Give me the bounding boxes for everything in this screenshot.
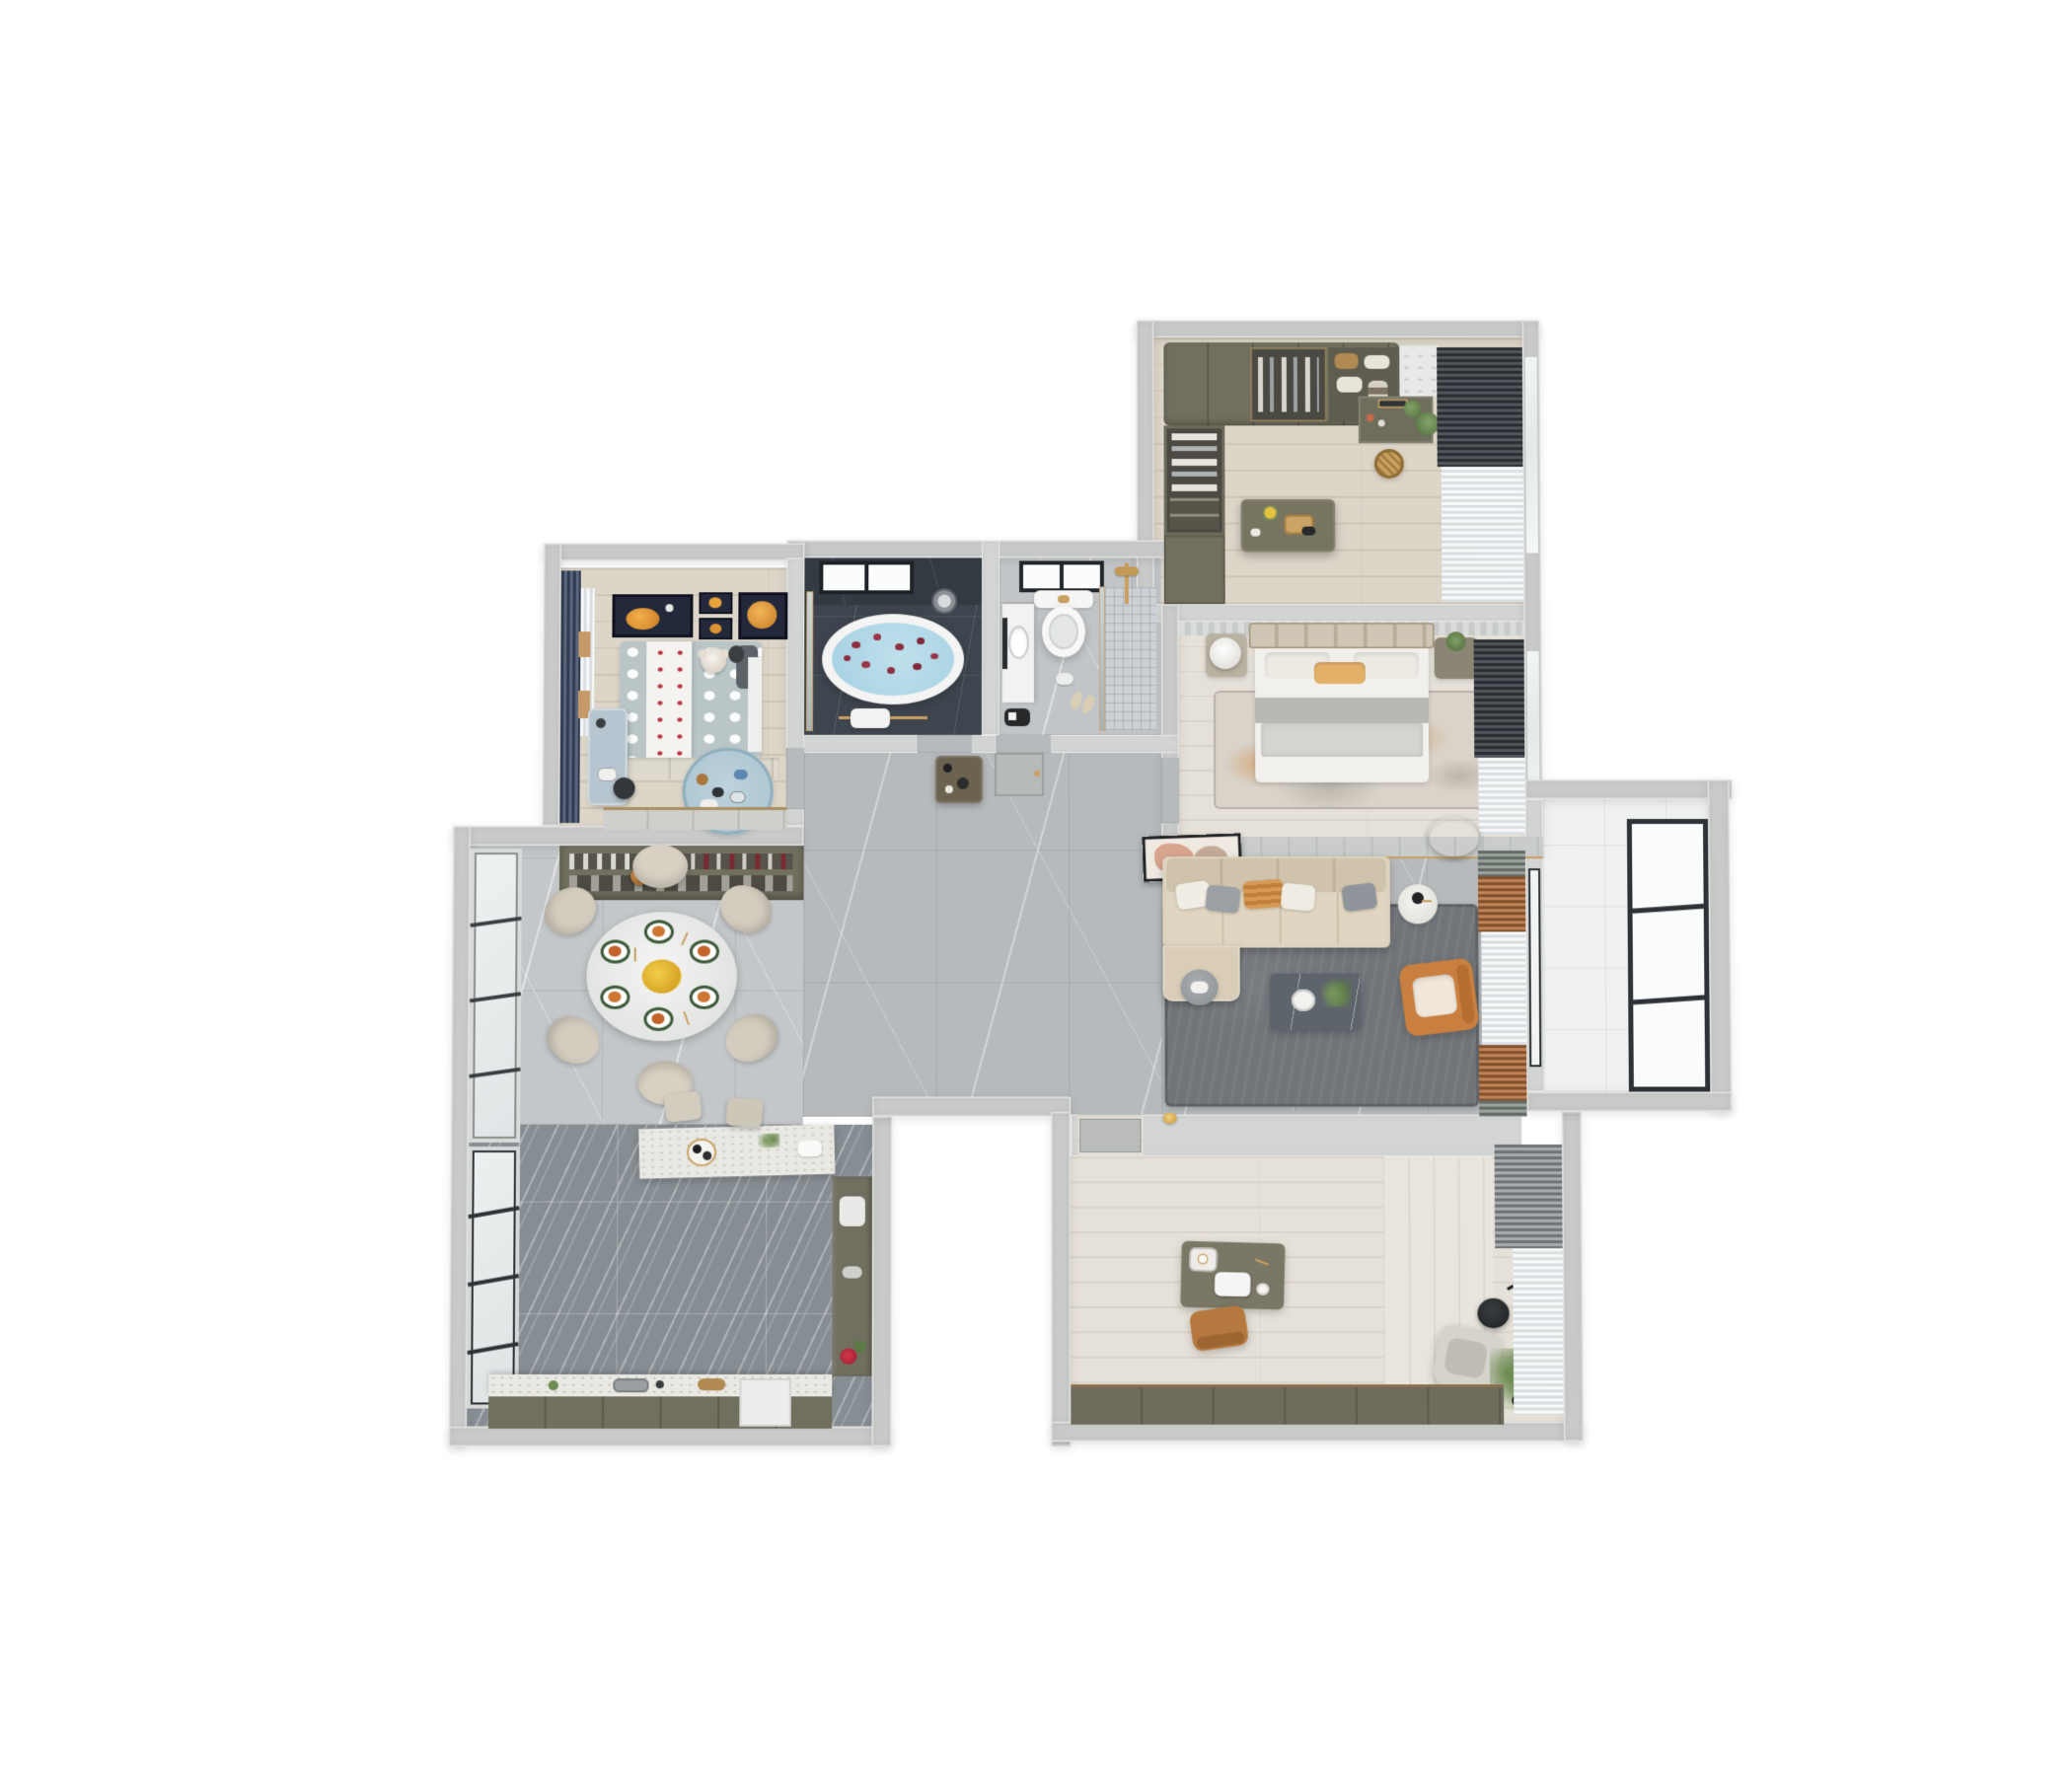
dresser-island — [1240, 499, 1335, 553]
window-division — [1627, 903, 1708, 914]
laptop — [1215, 1272, 1251, 1296]
window-mullion — [470, 992, 521, 1002]
wall-closet-bedroom — [1137, 604, 1542, 622]
kids-wardrobe — [603, 807, 786, 830]
rose-petal — [913, 663, 922, 670]
bathB-window — [1019, 560, 1104, 592]
book-on-table — [1191, 982, 1209, 994]
bedroom-curtains-dark — [1474, 639, 1525, 758]
bathtub — [822, 614, 964, 704]
orange-moon — [708, 597, 721, 608]
nightstand-plant — [1446, 631, 1466, 651]
door-handle-gold — [1034, 771, 1040, 777]
white-accessory — [1250, 529, 1260, 537]
white-drum-table — [1398, 884, 1438, 924]
wall-kids-left — [542, 544, 561, 827]
gold-pen — [1255, 1259, 1269, 1266]
storage-box — [1337, 377, 1363, 393]
sofa-main — [1162, 856, 1390, 947]
armchair-cushion-white — [1412, 974, 1458, 1018]
pillow-orange-striped — [1243, 879, 1285, 910]
black-vase — [957, 777, 969, 789]
orange-armchair — [1398, 957, 1480, 1037]
bathroom-shelf-black — [1004, 708, 1030, 726]
red-flowers — [840, 1349, 856, 1365]
shower-zone — [1105, 587, 1156, 730]
coffee-table-plant — [1321, 980, 1351, 1007]
kids-door-opening — [786, 748, 804, 809]
bathB-door-leaf — [995, 753, 1044, 796]
dining-chair — [632, 845, 688, 888]
rose-petal — [930, 653, 938, 659]
living-ceiling-ring-light — [1430, 821, 1479, 856]
food — [651, 1013, 664, 1024]
gold-lamp-arm — [1422, 900, 1432, 902]
orange-moon-large — [747, 601, 777, 629]
hanging-clothes — [1258, 357, 1319, 411]
vanity-plant-large — [1416, 411, 1440, 435]
counter-item-board — [698, 1378, 725, 1390]
white-box — [797, 1141, 822, 1157]
pillow-white — [1281, 883, 1316, 912]
black-table-lamp — [1412, 892, 1424, 904]
shower-glass-divider — [1100, 587, 1104, 730]
bedroom-sheer-curtain — [1478, 758, 1525, 835]
rose-petal — [861, 661, 870, 668]
wall-kitchen-right — [871, 1117, 892, 1446]
cabinet-shelf-bottles — [678, 853, 792, 869]
gold-cutlery — [683, 1011, 690, 1025]
perfume-bottles — [1367, 413, 1374, 421]
deer-plush — [728, 645, 744, 663]
dining-table — [586, 912, 737, 1041]
wall-balcony-right — [1708, 779, 1733, 1112]
living-curtain-green-top — [1478, 851, 1525, 876]
arc-lamp-shade — [1477, 1298, 1509, 1328]
dining-window — [469, 849, 522, 1143]
wardrobe-glass-section — [1250, 347, 1327, 421]
counter-items — [843, 1266, 862, 1278]
toilet-seat — [1049, 614, 1078, 649]
place-setting — [600, 986, 629, 1009]
pillow-gray — [1205, 885, 1241, 915]
closet-curtains-dark — [1437, 347, 1522, 467]
bar-stool — [725, 1097, 764, 1128]
food — [698, 945, 710, 956]
coffee-cup — [1256, 1283, 1269, 1295]
window-closet-right — [1525, 357, 1538, 553]
orange-planet — [626, 608, 659, 629]
white-towel — [851, 708, 890, 728]
window-mullion — [1060, 560, 1064, 592]
kids-blind-tan — [578, 631, 590, 657]
faucet — [656, 1380, 664, 1388]
teddy-bear — [701, 647, 726, 673]
bed-sheet-edge — [748, 657, 762, 752]
console-table — [935, 756, 983, 803]
study-low-cabinet — [1071, 1384, 1504, 1425]
wall-study-left — [1051, 1112, 1071, 1447]
living-curtain-rust-upper — [1478, 876, 1525, 931]
coffee-table — [1270, 974, 1362, 1030]
rose-petal — [873, 633, 881, 640]
wall-study-right — [1562, 1112, 1584, 1442]
hanging-clothes — [1172, 433, 1218, 492]
living-curtain-rust-lower — [1479, 1045, 1527, 1100]
balcony-window — [1627, 819, 1710, 1091]
window-mullion — [468, 1274, 519, 1287]
bathA-window — [819, 560, 914, 594]
black-cup — [703, 1151, 711, 1160]
floorplan-screenshot — [0, 0, 2072, 1776]
living-sheer-curtain — [1481, 931, 1526, 1045]
window-mullion — [470, 917, 521, 927]
tub-glass-partition — [807, 592, 812, 730]
study-gray-curtains — [1495, 1145, 1563, 1248]
rose-petal — [917, 637, 925, 644]
yellow-flower-centerpiece — [642, 960, 682, 994]
cosmetics — [1378, 419, 1385, 426]
black-vase — [943, 764, 952, 773]
toilet-bowl — [1042, 606, 1085, 657]
gold-cutlery — [681, 932, 689, 946]
closet-low-cabinet — [1164, 536, 1225, 605]
serving-tray — [687, 1138, 717, 1166]
food — [652, 925, 665, 936]
toy-plush — [697, 774, 708, 785]
storage-box — [1364, 355, 1389, 369]
bathA-door-opening — [918, 735, 972, 753]
counter-item-green — [549, 1380, 558, 1390]
bathB-door-opening — [997, 735, 1051, 753]
window-mullion — [468, 1206, 519, 1219]
task-chair-tan — [1189, 1304, 1250, 1352]
bar-counter — [638, 1124, 835, 1179]
black-cup — [693, 1145, 702, 1153]
wall-notch-top — [872, 1097, 1071, 1117]
teddy-ear — [698, 649, 706, 658]
rain-shower-head — [933, 590, 955, 612]
decor-white — [945, 785, 953, 793]
kids-art-frame-small-top — [699, 592, 732, 614]
closet-shelves — [1170, 498, 1220, 530]
window-mullion — [864, 560, 868, 594]
kids-desk-chair — [614, 777, 635, 799]
master-bed — [1255, 627, 1430, 782]
rose-petal — [844, 655, 851, 661]
shower-caddy — [1056, 673, 1073, 685]
window-division — [1628, 995, 1709, 1005]
living-curtain-green-bottom — [1479, 1101, 1526, 1117]
rattan-basket — [1374, 449, 1404, 479]
gold-wall-sconce — [1163, 1113, 1177, 1124]
white-dot-runner — [646, 641, 693, 758]
toy-letters — [730, 791, 746, 803]
lounge-cushion — [1443, 1337, 1489, 1379]
flower-vase — [1264, 507, 1276, 519]
folded-throw — [1261, 723, 1423, 757]
rose-petal — [851, 641, 860, 648]
drum-lamp — [1210, 637, 1241, 669]
window-mullion — [469, 1068, 520, 1078]
flower-greens — [853, 1340, 865, 1352]
kitchen-side-counter — [832, 1176, 872, 1376]
wall-kids-top — [544, 544, 805, 561]
gold-cutlery — [634, 947, 636, 961]
place-setting — [690, 939, 719, 963]
rose-petal — [895, 643, 904, 650]
tall-white-cabinet — [739, 1378, 791, 1427]
wall-balcony-top — [1524, 779, 1732, 799]
toy-block — [712, 787, 724, 797]
shelf-items — [1008, 712, 1016, 720]
orange-lumbar-pillow — [1314, 662, 1366, 684]
desk-books — [598, 768, 618, 781]
vanity-unit — [1002, 604, 1034, 703]
rose-petal — [887, 667, 895, 674]
wall-balcony-bottom — [1526, 1091, 1732, 1111]
place-setting — [601, 939, 630, 963]
green-sprig — [758, 1134, 779, 1148]
toy-block — [734, 770, 748, 779]
closet-sheer-curtain — [1442, 467, 1524, 602]
desk-lamp — [596, 718, 606, 728]
storage-box — [1335, 353, 1359, 369]
place-setting — [644, 920, 674, 943]
kids-art-frame-astronaut — [612, 594, 693, 637]
place-setting — [690, 986, 719, 1009]
closet-scalloped-tile — [1399, 345, 1439, 396]
armchair-arm — [1456, 964, 1476, 1024]
bed-headboard — [1249, 623, 1435, 648]
study-desk — [1180, 1241, 1285, 1310]
gray-blanket-band — [1255, 698, 1429, 723]
study-door-mat — [1079, 1119, 1141, 1152]
astronaut-dot — [665, 604, 673, 612]
cup-on-tray — [1197, 1253, 1208, 1264]
open-closet-left — [1164, 425, 1225, 535]
kids-art-frame-small-bottom — [699, 618, 732, 639]
white-tray — [1292, 990, 1315, 1011]
place-setting — [643, 1007, 673, 1031]
kids-art-frame-moon — [738, 592, 787, 639]
wall-bottom-kitchen — [448, 1427, 891, 1446]
vanity-basin — [1008, 626, 1029, 659]
wall-closet-top — [1136, 320, 1539, 337]
breakfast-tray — [1189, 1247, 1218, 1272]
orange-moon — [709, 624, 721, 633]
gold-shower-head — [1115, 566, 1139, 575]
gray-side-table — [1180, 970, 1218, 1005]
bedroom-door-opening — [1161, 758, 1179, 823]
floorplan-scene — [0, 7, 2072, 1776]
gold-flush-plate — [1058, 595, 1070, 603]
food — [608, 992, 621, 1002]
study-sheer-curtain — [1513, 1248, 1563, 1414]
wall-closet-left — [1136, 320, 1153, 604]
bar-stool — [664, 1091, 703, 1123]
food — [698, 992, 710, 1002]
vanity-faucet-panel — [1002, 618, 1007, 669]
balcony-sliding-door-frame — [1528, 868, 1541, 1067]
black-accessory — [1301, 527, 1315, 536]
kitchen-sink — [613, 1378, 648, 1392]
pillow-gray — [1341, 882, 1377, 912]
wall-baths-bottom — [786, 735, 1179, 753]
wall-bathAB-divider — [982, 541, 999, 735]
white-appliance — [840, 1197, 865, 1226]
window-mullion — [467, 1342, 518, 1355]
food — [609, 945, 622, 956]
kitchen-window — [467, 1147, 520, 1409]
